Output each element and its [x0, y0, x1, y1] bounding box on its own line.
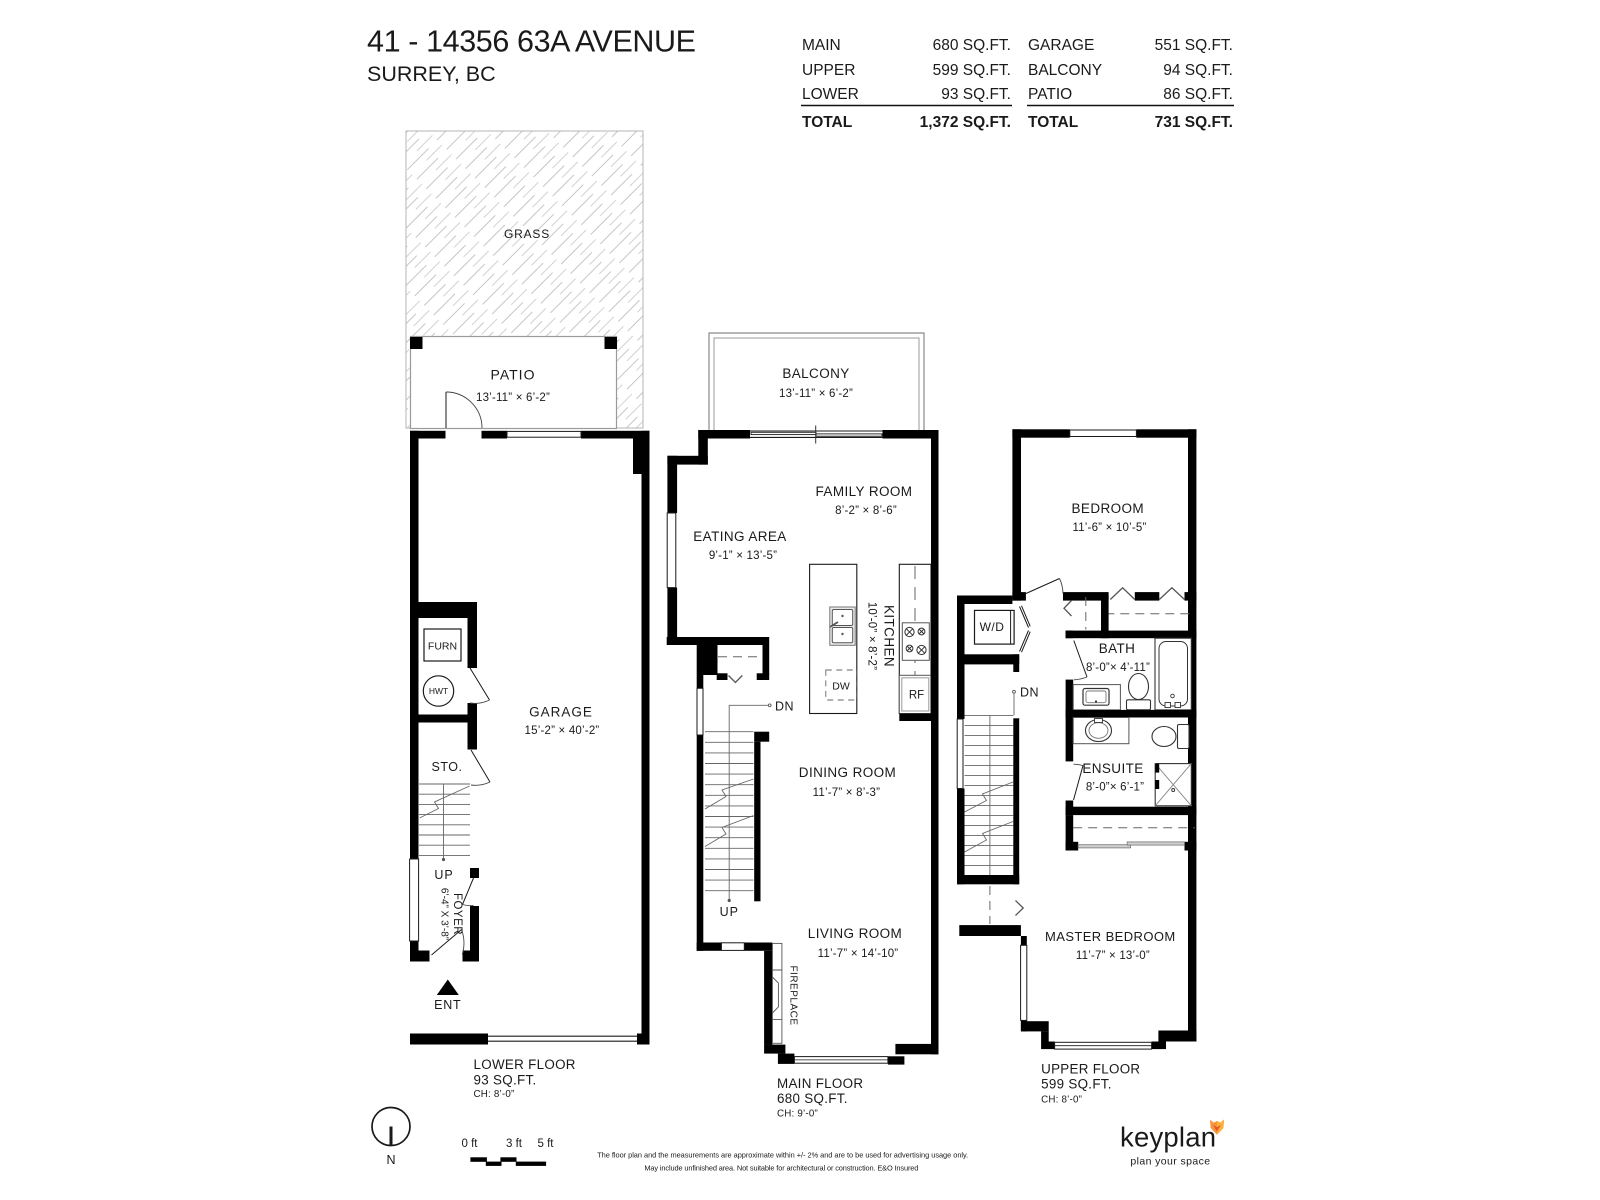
- svg-text:CH: 8’-0”: CH: 8’-0”: [474, 1089, 515, 1100]
- svg-text:W/D: W/D: [980, 620, 1005, 634]
- svg-text:MASTER BEDROOM: MASTER BEDROOM: [1045, 929, 1176, 944]
- svg-text:BALCONY: BALCONY: [782, 366, 849, 381]
- svg-text:1,372 SQ.FT.: 1,372 SQ.FT.: [920, 114, 1011, 131]
- svg-text:10’-0” × 8’-2”: 10’-0” × 8’-2”: [866, 602, 878, 670]
- svg-text:680 SQ.FT.: 680 SQ.FT.: [933, 37, 1011, 54]
- svg-text:94 SQ.FT.: 94 SQ.FT.: [1163, 62, 1233, 79]
- svg-text:93 SQ.FT.: 93 SQ.FT.: [474, 1073, 537, 1088]
- svg-text:UPPER FLOOR: UPPER FLOOR: [1041, 1062, 1140, 1077]
- svg-text:DINING ROOM: DINING ROOM: [799, 765, 896, 780]
- svg-text:DN: DN: [1020, 686, 1039, 700]
- svg-text:GRASS: GRASS: [504, 227, 550, 241]
- svg-text:TOTAL: TOTAL: [1028, 114, 1078, 131]
- svg-text:41 - 14356 63A AVENUE: 41 - 14356 63A AVENUE: [367, 25, 696, 59]
- svg-text:CH: 9’-0”: CH: 9’-0”: [777, 1109, 818, 1120]
- svg-text:LOWER: LOWER: [802, 86, 859, 103]
- svg-text:plan your space: plan your space: [1130, 1156, 1210, 1168]
- svg-text:8’-2” × 8’-6”: 8’-2” × 8’-6”: [835, 505, 897, 517]
- svg-text:11’-7” × 8’-3”: 11’-7” × 8’-3”: [813, 787, 880, 799]
- svg-text:9’-1” × 13’-5”: 9’-1” × 13’-5”: [709, 550, 777, 562]
- svg-text:FURN: FURN: [428, 641, 457, 653]
- svg-text:5 ft: 5 ft: [538, 1138, 555, 1150]
- svg-text:RF: RF: [909, 690, 924, 702]
- svg-text:N: N: [386, 1153, 395, 1167]
- svg-text:6’-4” X 3’-8”: 6’-4” X 3’-8”: [439, 888, 450, 940]
- svg-text:DW: DW: [832, 681, 850, 693]
- svg-text:13’-11” × 6’-2”: 13’-11” × 6’-2”: [779, 388, 853, 400]
- svg-text:EATING AREA: EATING AREA: [693, 529, 786, 544]
- svg-text:93 SQ.FT.: 93 SQ.FT.: [941, 86, 1011, 103]
- svg-text:GARAGE: GARAGE: [529, 705, 593, 720]
- svg-text:MAIN FLOOR: MAIN FLOOR: [777, 1076, 863, 1091]
- svg-text:KITCHEN: KITCHEN: [882, 605, 897, 667]
- svg-text:599 SQ.FT.: 599 SQ.FT.: [933, 62, 1011, 79]
- svg-text:PATIO: PATIO: [491, 367, 536, 383]
- svg-text:680 SQ.FT.: 680 SQ.FT.: [777, 1091, 848, 1106]
- svg-text:11’-7” × 14’-10”: 11’-7” × 14’-10”: [818, 948, 899, 960]
- svg-text:GARAGE: GARAGE: [1028, 37, 1094, 54]
- svg-text:The floor plan and the measure: The floor plan and the measurements are …: [597, 1151, 968, 1160]
- svg-text:UPPER: UPPER: [802, 62, 855, 79]
- svg-text:731 SQ.FT.: 731 SQ.FT.: [1155, 114, 1233, 131]
- svg-text:SURREY, BC: SURREY, BC: [367, 62, 496, 86]
- svg-text:599 SQ.FT.: 599 SQ.FT.: [1041, 1077, 1112, 1092]
- svg-text:8’-0”× 6’-1”: 8’-0”× 6’-1”: [1086, 782, 1144, 794]
- svg-text:DN: DN: [775, 700, 794, 714]
- svg-text:FIREPLACE: FIREPLACE: [788, 965, 799, 1025]
- svg-text:UP: UP: [720, 905, 739, 919]
- svg-text:FAMILY ROOM: FAMILY ROOM: [816, 484, 913, 499]
- svg-text:0 ft: 0 ft: [462, 1138, 479, 1150]
- svg-text:CH: 8’-0”: CH: 8’-0”: [1041, 1095, 1082, 1106]
- svg-text:PATIO: PATIO: [1028, 86, 1072, 103]
- svg-text:keyplan: keyplan: [1120, 1122, 1216, 1153]
- svg-text:ENSUITE: ENSUITE: [1082, 761, 1143, 776]
- svg-text:BEDROOM: BEDROOM: [1072, 501, 1145, 516]
- svg-text:15’-2” × 40’-2”: 15’-2” × 40’-2”: [525, 725, 600, 737]
- svg-text:BALCONY: BALCONY: [1028, 62, 1102, 79]
- svg-text:FOYER: FOYER: [451, 893, 463, 935]
- svg-text:3 ft: 3 ft: [506, 1138, 523, 1150]
- svg-text:551 SQ.FT.: 551 SQ.FT.: [1155, 37, 1233, 54]
- svg-text:STO.: STO.: [432, 760, 463, 774]
- svg-text:11’-6” × 10’-5”: 11’-6” × 10’-5”: [1072, 522, 1146, 534]
- svg-text:HWT: HWT: [429, 686, 448, 696]
- svg-text:LOWER FLOOR: LOWER FLOOR: [474, 1057, 576, 1072]
- svg-text:BATH: BATH: [1099, 641, 1136, 656]
- svg-text:LIVING ROOM: LIVING ROOM: [808, 926, 902, 941]
- svg-text:11’-7” × 13’-0”: 11’-7” × 13’-0”: [1076, 950, 1150, 962]
- svg-text:May include unfinished area. N: May include unfinished area. Not suitabl…: [644, 1164, 918, 1173]
- svg-text:MAIN: MAIN: [802, 37, 841, 54]
- svg-text:13’-11” × 6’-2”: 13’-11” × 6’-2”: [476, 392, 550, 404]
- svg-text:ENT: ENT: [434, 998, 461, 1012]
- svg-text:TOTAL: TOTAL: [802, 114, 852, 131]
- svg-text:UP: UP: [434, 868, 453, 882]
- svg-text:86 SQ.FT.: 86 SQ.FT.: [1163, 86, 1233, 103]
- svg-text:8’-0”× 4’-11”: 8’-0”× 4’-11”: [1086, 662, 1150, 674]
